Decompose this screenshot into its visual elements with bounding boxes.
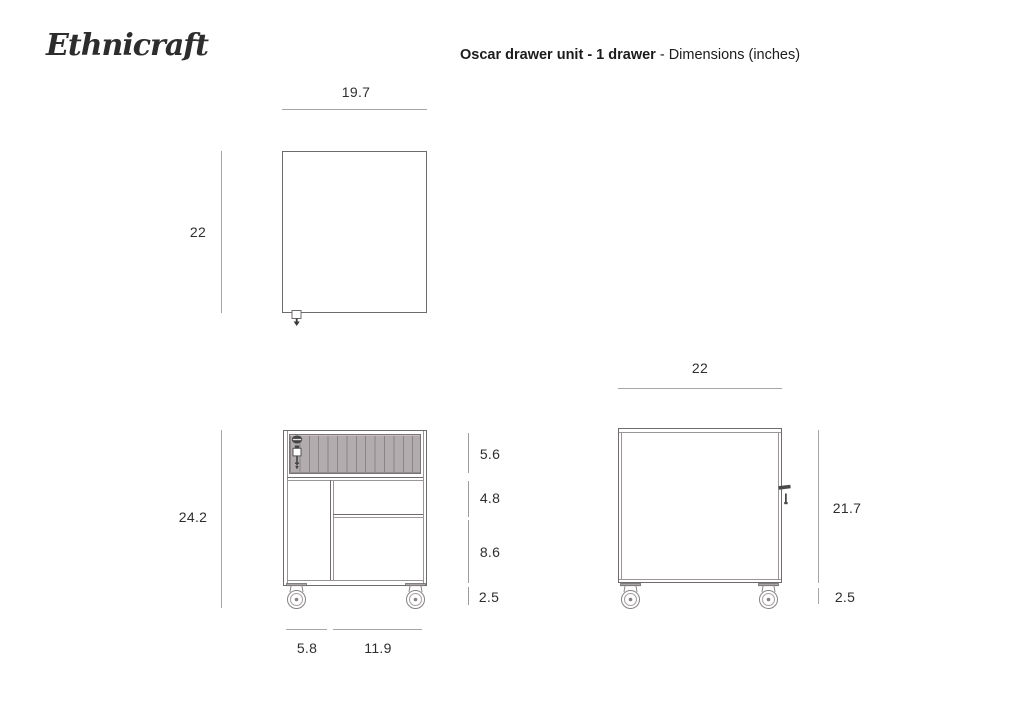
- dim-line-top-depth: [221, 151, 222, 313]
- caster-wheel-icon: [404, 583, 427, 610]
- dim-top-depth: 22: [190, 224, 206, 240]
- product-name: Oscar drawer unit - 1 drawer: [460, 47, 656, 63]
- side-view-outline: [618, 428, 782, 583]
- dim-line-left-width: [286, 629, 327, 630]
- drawer-front-slats: [289, 434, 421, 474]
- front-right-panel-line: [423, 431, 424, 585]
- dim-line-top-width: [282, 109, 427, 110]
- side-top-panel-line: [619, 432, 781, 433]
- divider-right-line: [333, 480, 334, 580]
- drawer-rail-bottom-line: [287, 480, 423, 481]
- dim-right-section-width: 11.9: [364, 640, 391, 656]
- dim-side-body-height: 21.7: [833, 500, 861, 516]
- dim-seg-caster: [468, 587, 469, 605]
- drawer-rail-top-line: [287, 477, 423, 478]
- dim-side-depth: 22: [692, 360, 708, 376]
- lock-plan-icon: [289, 309, 305, 328]
- top-view-outline: [282, 151, 427, 313]
- dim-line-right-width: [333, 629, 422, 630]
- dim-line-side-caster: [818, 588, 819, 604]
- dim-upper-compartment: 4.8: [480, 490, 500, 506]
- dim-left-section-width: 5.8: [297, 640, 317, 656]
- caster-wheel-icon: [757, 583, 780, 610]
- bottom-panel-line: [287, 580, 423, 581]
- divider-left-line: [330, 480, 331, 580]
- front-left-panel-line: [287, 431, 288, 585]
- key-side-icon: [777, 481, 793, 508]
- side-left-panel-line: [621, 432, 622, 579]
- side-bottom-panel-line: [619, 579, 781, 580]
- brand-logo: Ethnicraft: [46, 28, 208, 63]
- dim-front-overall-height: 24.2: [179, 509, 207, 525]
- dim-lower-compartment: 8.6: [480, 544, 500, 560]
- dim-line-side-depth: [618, 388, 782, 389]
- shelf-bottom-line: [333, 517, 423, 518]
- dim-seg-drawer: [468, 433, 469, 473]
- caster-wheel-icon: [619, 583, 642, 610]
- page-title: Oscar drawer unit - 1 drawer - Dimension…: [460, 47, 800, 63]
- dim-front-caster-height: 2.5: [479, 589, 499, 605]
- dim-side-caster-height: 2.5: [835, 589, 855, 605]
- dim-line-front-height: [221, 430, 222, 608]
- shelf-top-line: [333, 514, 423, 515]
- title-suffix: - Dimensions (inches): [656, 47, 800, 63]
- dim-drawer-height: 5.6: [480, 446, 500, 462]
- drawing-sheet: Ethnicraft Oscar drawer unit - 1 drawer …: [0, 0, 1024, 726]
- caster-wheel-icon: [285, 583, 308, 610]
- dim-seg-lower: [468, 520, 469, 583]
- lock-key-icon: [291, 435, 304, 471]
- dim-seg-upper: [468, 481, 469, 517]
- dim-top-width: 19.7: [342, 84, 370, 100]
- dim-line-side-body-height: [818, 430, 819, 583]
